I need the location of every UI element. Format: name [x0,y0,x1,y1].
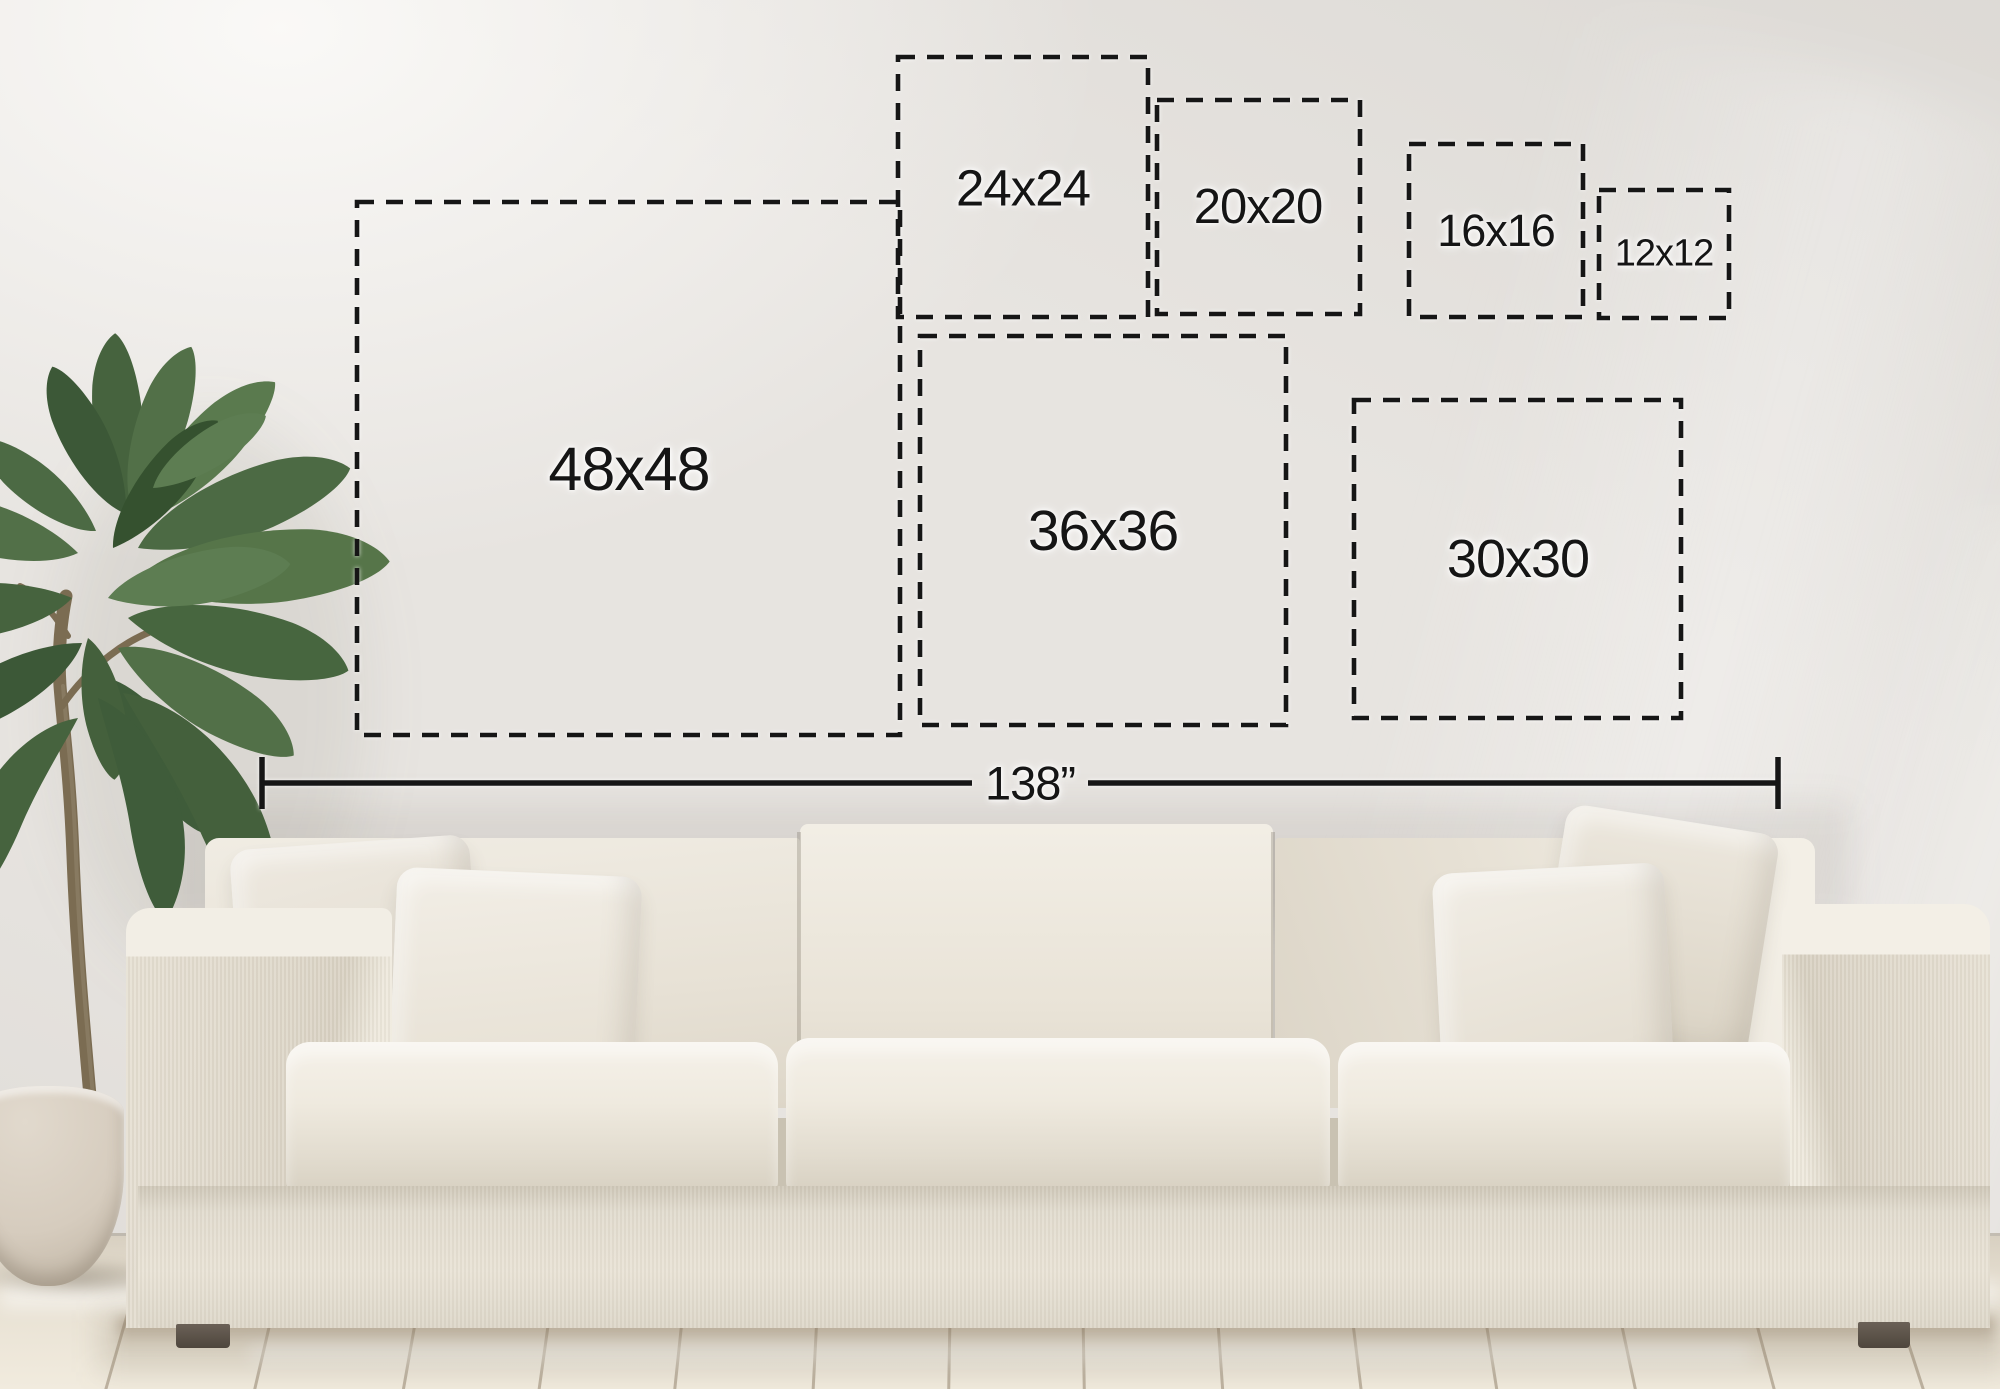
room-scene: 48x48 36x36 30x30 24x24 20x20 16x16 12x1… [0,0,2000,1389]
size-label-24x24: 24x24 [956,159,1090,218]
size-label-36x36: 36x36 [1028,498,1178,564]
wall-width-label: 138” [985,756,1075,811]
size-label-20x20: 20x20 [1194,179,1323,235]
size-label-16x16: 16x16 [1437,205,1555,257]
size-label-12x12: 12x12 [1615,233,1714,276]
size-label-30x30: 30x30 [1447,528,1589,590]
size-label-48x48: 48x48 [548,434,709,504]
